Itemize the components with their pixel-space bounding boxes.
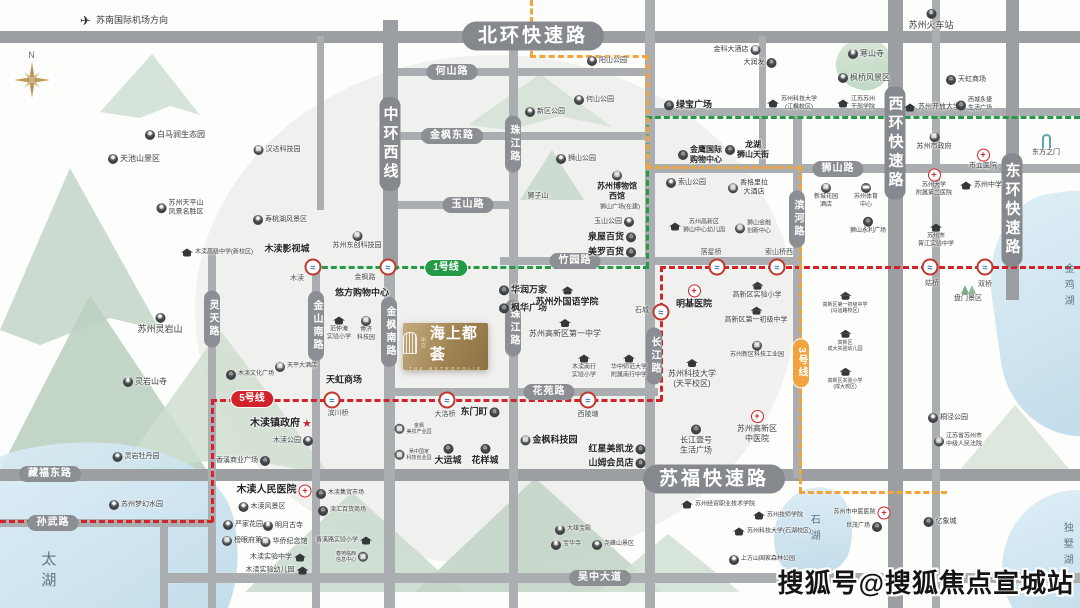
- poi: 苏州中学: [960, 182, 1002, 191]
- mall-icon: [872, 522, 882, 532]
- poi-label: 苏州市中医医院: [833, 509, 875, 517]
- cap-icon: [360, 537, 372, 546]
- bld-icon: [728, 183, 738, 193]
- poi-label: 苏州市胥江实验中学: [918, 234, 954, 249]
- park-icon: [928, 413, 938, 423]
- road-name-pill: 孙武路: [28, 515, 79, 531]
- metro-station-icon: [580, 392, 597, 409]
- cap-icon: [181, 249, 193, 258]
- poi-label: 金鸡湖: [1061, 263, 1074, 311]
- poi-label: 春苑临西信息中心: [336, 551, 356, 564]
- poi-label: 苏州火车站: [908, 20, 953, 31]
- poi: 木渎公园: [273, 436, 313, 446]
- poi: 香溪商业广场: [216, 456, 270, 466]
- poi-label: 花样城: [471, 455, 498, 466]
- poi-label: 苏州梦幻水园: [121, 501, 163, 510]
- bld-icon: [751, 45, 761, 55]
- poi: 金枫科技园: [520, 434, 577, 445]
- poi: 苏州经贸职业技术学院: [681, 501, 755, 510]
- poi: 寿桃湖风景区: [253, 215, 307, 225]
- poi: 苏州高新区狮山中心幼儿园: [669, 220, 725, 235]
- poi: 苏南国际机场方向: [80, 14, 168, 28]
- poi-label: 高新区实验小学(成大校区): [827, 378, 862, 391]
- poi: 明月古寺: [263, 521, 303, 531]
- park-icon: [108, 154, 118, 164]
- poi-label: 盘门景区: [954, 295, 982, 304]
- poi: 木渎高级中学(新校区): [181, 249, 253, 258]
- poi-label: 天平大酒店: [287, 363, 317, 371]
- poi-label: 范仲淹实验小学: [327, 327, 351, 342]
- cap-icon: [669, 223, 681, 232]
- mall-icon: [664, 100, 674, 110]
- bld-icon: [929, 132, 939, 142]
- poi: 金枫美妆产业园: [394, 423, 431, 436]
- poi: 苏州开放大学: [904, 104, 960, 113]
- metro-station-label: 西陵塘: [578, 409, 599, 419]
- poi: 苏州高新区第一中学: [529, 319, 601, 339]
- road-name-pill: 金枫东路: [421, 128, 483, 144]
- cap-icon: [297, 567, 309, 576]
- poi: 高新区成大实验幼儿园: [827, 330, 862, 353]
- park-icon: [109, 500, 119, 510]
- poi-label: 苏州高新区中医院: [737, 424, 777, 444]
- metro-line-label: 3号线: [792, 338, 810, 388]
- cap-icon: [839, 292, 851, 301]
- hosp-icon: [299, 485, 312, 498]
- bld-icon: [261, 537, 271, 547]
- cap-icon: [839, 368, 851, 377]
- poi-label: 长江壹号生活广场: [680, 436, 712, 456]
- poi-label: 苏州体育中心: [854, 194, 878, 209]
- poi: 范仲淹实验小学: [327, 317, 351, 342]
- hosp-icon: [977, 149, 990, 162]
- poi: 世茂广场: [846, 522, 882, 532]
- park-icon: [239, 502, 249, 512]
- poi: 天平大酒店: [275, 362, 317, 372]
- poi-label: 木渎人民医院: [237, 485, 297, 498]
- bld-icon: [394, 424, 404, 434]
- bld-icon: [394, 450, 404, 460]
- poi-label: 市立医院: [969, 163, 997, 172]
- poi: 苏州科技大学(天平校区): [668, 359, 716, 389]
- poi: 苏州科技大学(江枫校区): [767, 97, 817, 112]
- poi: 苏州梦幻水园: [109, 500, 163, 510]
- poi: 枫桥风景区: [838, 73, 890, 83]
- poi-label: 太湖: [38, 551, 57, 593]
- poi-label: 金枫科技园: [532, 434, 577, 445]
- poi: 木渎实验中学: [250, 554, 306, 563]
- bld-icon: [735, 223, 745, 233]
- bld-icon: [361, 316, 371, 326]
- poi: 苏州东创科技园: [333, 231, 382, 251]
- cap-icon: [751, 282, 763, 291]
- poi-label: 西城永捷生活广场: [968, 98, 992, 113]
- poi-label: 高新区实验小学: [733, 292, 782, 301]
- poi: 灵岩山寺: [123, 377, 167, 387]
- poi: 狮山永利广场: [850, 217, 886, 236]
- cap-icon: [930, 224, 942, 233]
- watermark: 搜狐号@搜狐焦点宣城站: [778, 563, 1074, 600]
- poi: 狮子山: [528, 193, 549, 202]
- poi-label: 木渎风景区: [251, 503, 286, 512]
- poi-label: 世茂广场: [846, 523, 870, 531]
- tree-icon: [961, 284, 976, 294]
- road-name-pill: 金枫南路: [381, 297, 397, 367]
- metro-line-label: 1号线: [424, 259, 468, 277]
- cap-icon: [578, 355, 590, 364]
- road-name-pill: 西环快速路: [885, 87, 906, 200]
- road-name-pill: 北环快速路: [462, 22, 604, 51]
- poi: 严家花园: [223, 520, 263, 530]
- mall-icon: [924, 517, 934, 527]
- project-logo: 中交 海上都荟 THE METROPOLIS: [403, 323, 488, 370]
- poi: 香格里拉大酒店: [728, 179, 768, 197]
- mall-icon: [499, 285, 509, 295]
- poi: 木渎文化广场: [226, 370, 274, 380]
- poi: 灵岩牡丹园: [113, 452, 160, 462]
- poi-label: 木渎实验幼儿园: [246, 567, 295, 576]
- park-icon: [587, 56, 597, 66]
- poi-label: 江苏苏州干部学院: [851, 97, 875, 112]
- poi: 苏州外国语学院: [535, 286, 598, 307]
- poi: 高新区第一初级中学: [725, 307, 788, 326]
- poi-label: 狮山广场(在建): [600, 204, 640, 212]
- metro-station-icon: [324, 392, 341, 409]
- poi: 江苏苏州干部学院: [837, 97, 875, 112]
- poi: 新城花园酒店: [814, 183, 838, 209]
- metro-station-label: 落星桥: [701, 247, 722, 257]
- poi-label: 严家花园: [235, 521, 263, 530]
- road-name-pill: 东环快速路: [1002, 154, 1023, 267]
- cap-icon: [733, 528, 745, 537]
- mall-icon: [626, 247, 636, 257]
- poi-label: 木渎影视城: [264, 243, 309, 254]
- metro-station-label: 索山桥西: [765, 247, 793, 257]
- road-name-pill: 长江路: [646, 328, 662, 385]
- poi: 高新区实验小学(成大校区): [827, 368, 862, 391]
- poi-label: 龙湖狮山天街: [737, 140, 769, 160]
- metro-station-icon: [977, 259, 994, 276]
- poi-label: 苏州技师学院: [767, 512, 803, 520]
- poi: 高新区第一初级中学(马运路校区): [822, 292, 867, 315]
- poi: 亿象城: [924, 517, 957, 527]
- cap-icon: [623, 355, 635, 364]
- poi-label: 悠方购物中心: [335, 287, 389, 298]
- poi-label: 博济科技园: [357, 327, 375, 342]
- poi-label: 寒山寺: [860, 49, 884, 59]
- poi: 苏州火车站: [908, 9, 953, 31]
- poi-label: 狮山公园: [568, 155, 596, 164]
- mall-icon: [636, 458, 646, 468]
- poi-label: 苏州博物馆西馆: [597, 182, 637, 202]
- hosp-icon: [878, 507, 891, 520]
- mall-icon: [946, 75, 956, 85]
- poi-label: 苏州经贸职业技术学院: [695, 501, 755, 509]
- mall-icon: [318, 506, 328, 516]
- poi: 汉达科技园: [254, 145, 301, 155]
- poi-label: 美罗百货: [588, 246, 624, 257]
- poi-label: 苏州高新区第一中学: [529, 329, 601, 339]
- project-logo-mark-icon: [403, 332, 417, 354]
- poi-label: 新城花园酒店: [814, 194, 838, 209]
- bld-icon: [275, 362, 285, 372]
- road-name-pill: 灵天路: [204, 291, 220, 348]
- poi: 玉山公园: [594, 217, 634, 227]
- poi-label: 阳山公园: [599, 57, 627, 66]
- poi-label: 华侨纪念馆: [273, 538, 308, 547]
- metro-station-label: 姑桥: [925, 278, 939, 288]
- park-icon: [666, 178, 676, 188]
- poi-label: 新区公园: [537, 108, 565, 117]
- poi-label: 榜眼府第: [234, 537, 262, 546]
- metro-station-label: 石城: [635, 305, 649, 315]
- poi-label: 石湖: [807, 514, 820, 546]
- mall-icon: [956, 100, 966, 110]
- poi-label: 灵岩山寺: [135, 377, 167, 387]
- poi: 苏州博物馆西馆: [597, 171, 637, 202]
- poi: 白马涧生态园: [145, 130, 205, 140]
- mall-icon: [316, 489, 326, 499]
- park-icon: [838, 73, 848, 83]
- poi-label: 尧峰山景区: [604, 541, 634, 549]
- poi-label: 亿象城: [936, 518, 957, 527]
- poi: 长江壹号生活广场: [680, 425, 712, 456]
- metro-station-icon: [380, 259, 397, 276]
- metro-station-icon: [653, 304, 670, 321]
- cap-icon: [837, 100, 849, 109]
- poi: 新区公园: [525, 107, 565, 117]
- project-logo-subtitle: THE METROPOLIS: [409, 366, 482, 371]
- mall-icon: [626, 232, 636, 242]
- bld-icon: [352, 231, 362, 241]
- poi-label: 苏州新区科技工业园: [730, 352, 784, 360]
- park-icon: [525, 107, 535, 117]
- road-name-pill: 金山南路: [308, 291, 324, 361]
- poi: 大雄宝殿: [555, 525, 591, 535]
- poi-label: 香溪路实验小学: [316, 537, 358, 545]
- poi: 华侨纪念馆: [261, 537, 308, 547]
- temple-icon: [555, 525, 565, 535]
- park-icon: [624, 217, 634, 227]
- park-icon: [592, 540, 602, 550]
- poi: 太湖: [38, 551, 57, 593]
- poi-label: 苏南国际机场方向: [96, 15, 168, 26]
- poi-label: 金鹰国际购物中心: [690, 145, 722, 165]
- poi-label: 汉达科技园: [266, 146, 301, 155]
- cap-icon: [559, 319, 571, 328]
- poi: 索山公园: [666, 178, 706, 188]
- compass: N: [12, 50, 52, 102]
- mall-icon: [636, 444, 646, 454]
- park-icon: [155, 313, 165, 323]
- poi-label: 华中师范大学附属南行中学: [611, 365, 647, 380]
- hosp-icon: [927, 169, 940, 182]
- bld-icon: [254, 145, 264, 155]
- poi: 红星美凯龙: [588, 443, 645, 454]
- mall-icon: [490, 407, 500, 417]
- poi: 苏州科技大学(石湖校区): [733, 528, 811, 537]
- mall-icon: [260, 456, 270, 466]
- poi: 大润发: [744, 58, 777, 68]
- poi-label: 大润发: [744, 59, 765, 68]
- bld-icon: [222, 536, 232, 546]
- road-name-pill: 何山路: [427, 64, 478, 80]
- temple-icon: [551, 540, 561, 550]
- cap-icon: [767, 100, 779, 109]
- poi: 苏州天平山风景名胜区: [157, 199, 204, 217]
- poi: 山姆会员店: [588, 457, 645, 468]
- poi-label: 苏州东创科技园: [333, 242, 382, 251]
- poi: 苏州市胥江实验中学: [918, 224, 954, 249]
- compass-rose-icon: [14, 62, 50, 98]
- cap-icon: [753, 512, 765, 521]
- poi-label: 苏州外国语学院: [535, 296, 598, 307]
- mall-icon: [863, 217, 873, 227]
- poi-label: 索山公园: [678, 179, 706, 188]
- poi: 木渎南行实验小学: [572, 355, 596, 380]
- metro-line3: [646, 55, 649, 168]
- park-icon: [113, 452, 123, 462]
- poi: 天虹商场: [326, 374, 362, 385]
- mall-icon: [767, 58, 777, 68]
- poi: 苏州高新区中医院: [737, 410, 777, 444]
- poi: 木渎镇政府: [250, 418, 314, 431]
- mall-icon: [226, 370, 236, 380]
- poi: 何山公园: [574, 95, 614, 105]
- metro-station-label: 大洛桥: [435, 409, 456, 419]
- poi-label: 高新区第一初级中学(马运路校区): [822, 302, 867, 315]
- poi: 苏州大学附属第二医院: [916, 169, 952, 198]
- mall-icon: [443, 444, 453, 454]
- poi: 狮山金融创新中心: [735, 221, 771, 236]
- poi-label: 苏州科技大学(石湖校区): [747, 528, 811, 536]
- poi-label: 木渎公园: [273, 437, 301, 446]
- poi: 木渎实验幼儿园: [246, 567, 309, 576]
- poi: 狮山广场(在建): [600, 204, 640, 212]
- star-icon: [302, 418, 314, 430]
- poi-label: 东方之门: [1032, 149, 1060, 158]
- poi: 天池山景区: [108, 154, 160, 164]
- plane-icon: [80, 14, 94, 28]
- cap-icon: [750, 307, 762, 316]
- road: [160, 519, 168, 608]
- cap-icon: [681, 501, 693, 510]
- poi: 苏州技师学院: [753, 512, 803, 521]
- poi-label: 灵岩牡丹园: [125, 453, 160, 462]
- poi-label: 枫桥风景区: [850, 73, 890, 83]
- poi: 木渎风景区: [239, 502, 286, 512]
- park-icon: [253, 215, 263, 225]
- road-name-pill: 中环西线: [380, 97, 401, 191]
- poi-label: 苏州科技大学(天平校区): [668, 369, 716, 389]
- bld-icon: [358, 552, 368, 562]
- poi-label: 苏州市政府: [917, 143, 952, 152]
- poi-label: 狮山金融创新中心: [747, 221, 771, 236]
- poi: 渎汇百货商场: [318, 506, 366, 516]
- poi: 东方之门: [1032, 134, 1060, 158]
- poi-label: 天池山景区: [120, 154, 160, 164]
- poi-label: 江苏省苏州市中级人民法院: [946, 434, 982, 449]
- poi-label: 香溪商业广场: [216, 457, 258, 466]
- poi-label: 明月古寺: [275, 522, 303, 531]
- poi-label: 高新区第一初级中学: [725, 317, 788, 326]
- poi: 石湖: [807, 514, 820, 546]
- mall-icon: [480, 444, 490, 454]
- poi: 苏州灵岩山: [137, 313, 182, 335]
- tower-icon: [1042, 134, 1051, 148]
- poi-label: 木渎文化广场: [238, 371, 274, 379]
- poi-label: 天虹商场: [326, 374, 362, 385]
- poi: 华中师范大学附属南行中学: [611, 355, 647, 380]
- bld-icon: [934, 436, 944, 446]
- poi: 盘门景区: [954, 284, 982, 304]
- mall-icon: [499, 303, 509, 313]
- temple-icon: [848, 49, 858, 59]
- poi-label: 木渎南行实验小学: [572, 365, 596, 380]
- cap-icon: [686, 359, 698, 368]
- poi: 龙湖狮山天街: [725, 140, 769, 160]
- poi-label: 红星美凯龙: [588, 443, 633, 454]
- road-name-pill: 吴中大道: [569, 570, 631, 586]
- poi: 东门町: [460, 406, 499, 417]
- poi: 阳山公园: [587, 56, 627, 66]
- metro-station-icon: [922, 259, 939, 276]
- poi: 苏州体育中心: [854, 183, 878, 209]
- poi-label: 绿宝广场: [676, 99, 712, 110]
- mall-icon: [691, 425, 701, 435]
- metro-station-icon: [305, 259, 322, 276]
- poi-label: 木渎集贸市场: [328, 490, 364, 498]
- poi: 宝华寺: [551, 540, 581, 550]
- poi: 西城永捷生活广场: [956, 98, 992, 113]
- poi-label: 苏州科技大学(江枫校区): [781, 97, 817, 112]
- poi: 苏州新区科技工业园: [730, 341, 784, 360]
- road: [317, 36, 324, 210]
- project-logo-name: 海上都荟: [430, 322, 488, 364]
- poi: 市立医院: [969, 149, 997, 172]
- poi-label: 玉山公园: [594, 218, 622, 227]
- metro-line1: [313, 266, 649, 269]
- poi: 木渎影视城: [264, 243, 309, 254]
- poi-label: 苏州中学: [974, 182, 1002, 191]
- hosp-icon: [687, 284, 700, 297]
- metro-station-label: 金枫路: [355, 272, 376, 282]
- compass-north-label: N: [28, 50, 36, 60]
- road-name-pill: 滨河路: [789, 191, 805, 248]
- poi-label: 苏州高新区狮山中心幼儿园: [683, 220, 725, 235]
- park-icon: [303, 436, 313, 446]
- road-name-pill: 珠江路: [505, 116, 521, 173]
- cap-icon: [561, 286, 573, 295]
- poi: 大运城: [434, 444, 461, 466]
- poi: 明基医院: [676, 284, 712, 309]
- poi: 悠方购物中心: [335, 287, 389, 298]
- poi: 金科大酒店: [714, 45, 761, 55]
- cap-icon: [333, 317, 345, 326]
- bld-icon: [821, 183, 831, 193]
- metro-line3: [799, 491, 947, 494]
- poi-label: 狮山永利广场: [850, 228, 886, 236]
- metro-station-label: 木渎: [290, 273, 304, 283]
- poi-label: 狮子山: [528, 193, 549, 202]
- cap-icon: [839, 330, 851, 339]
- poi: 木渎集贸市场: [316, 489, 364, 499]
- poi: 寒山寺: [848, 49, 884, 59]
- cap-icon: [960, 182, 972, 191]
- park-icon: [729, 555, 739, 565]
- poi: 美罗百货: [588, 246, 636, 257]
- project-logo-brand: 中交: [420, 337, 427, 349]
